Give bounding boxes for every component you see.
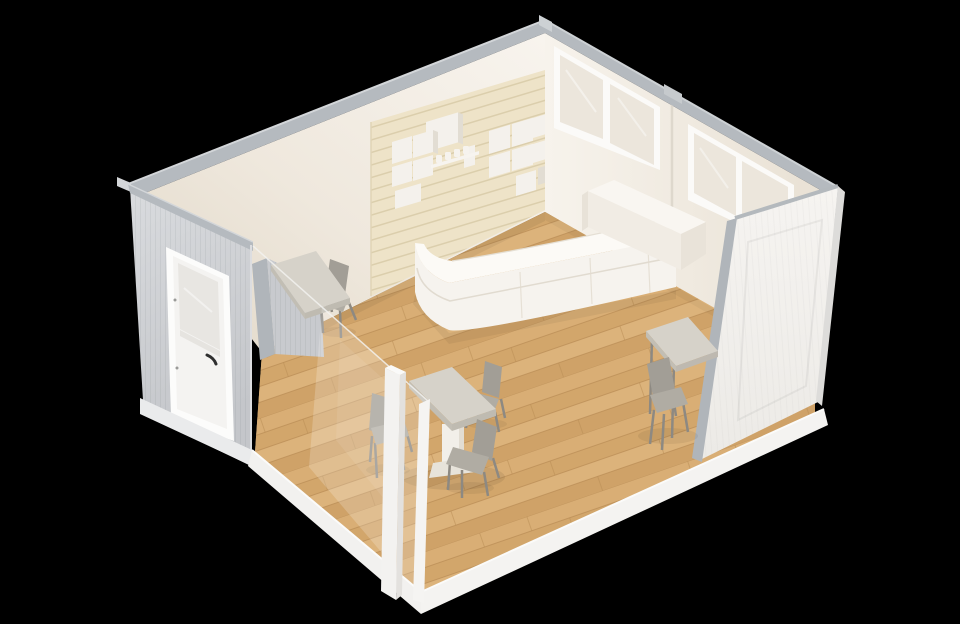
render-canvas bbox=[0, 0, 960, 624]
cup bbox=[436, 155, 442, 163]
chair-backrest bbox=[482, 361, 502, 398]
shelf-box-side bbox=[433, 130, 438, 154]
cup bbox=[463, 146, 469, 154]
cafe-cutaway-render bbox=[0, 0, 960, 624]
entry-door bbox=[166, 247, 234, 441]
counter-raised-end bbox=[582, 191, 588, 231]
door-hinge bbox=[176, 367, 179, 370]
cup bbox=[445, 152, 451, 160]
door-hinge bbox=[174, 299, 177, 302]
cup bbox=[454, 149, 460, 157]
shelf-box-side bbox=[458, 112, 463, 144]
